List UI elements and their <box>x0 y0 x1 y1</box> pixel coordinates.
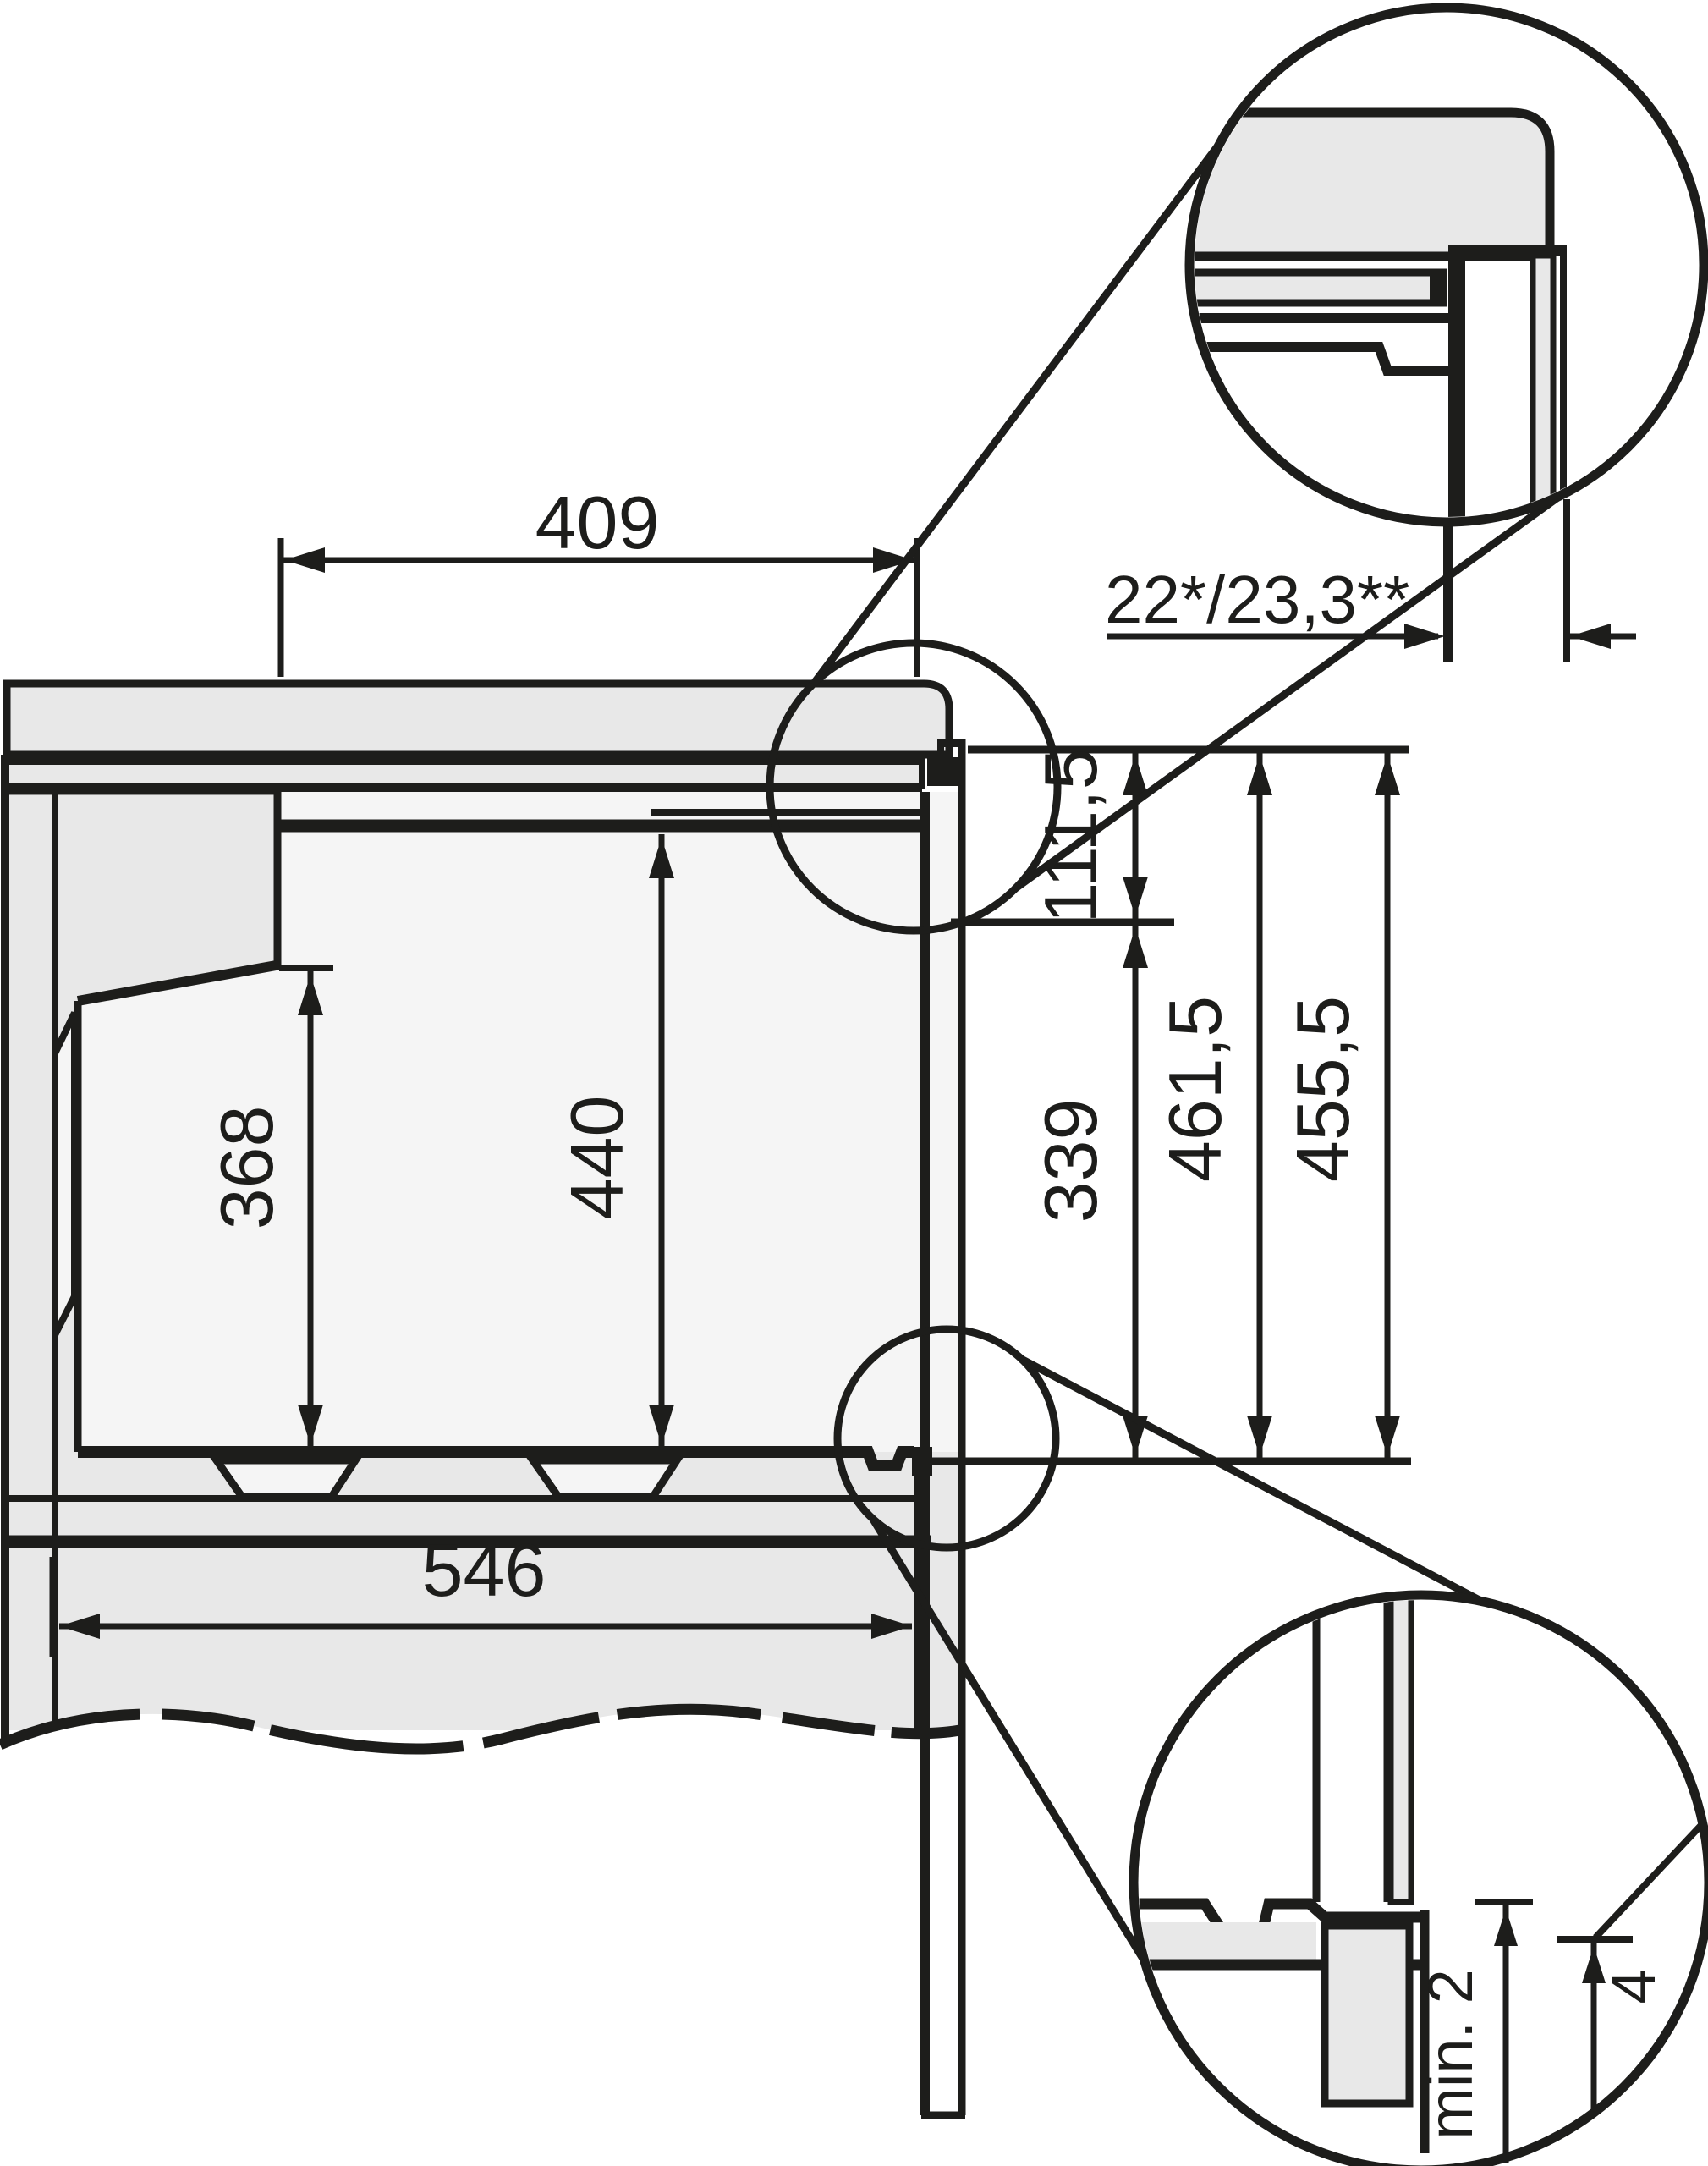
detail-top-door-glass <box>1533 256 1553 526</box>
label-339: 339 <box>1029 1099 1112 1223</box>
installation-diagram: 409 22*/23,3** 111,5 339 461,5 455,5 440… <box>0 0 1708 2166</box>
detail-top-panel-cap <box>1430 271 1445 305</box>
door-front-void <box>928 792 962 1452</box>
arrow-111-5-up <box>1123 755 1148 795</box>
label-111-5: 111,5 <box>1029 748 1112 923</box>
arrow-111-5-down <box>1123 877 1148 917</box>
label-368: 368 <box>205 1106 288 1230</box>
label-455-5: 455,5 <box>1281 996 1365 1182</box>
detail-bottom-shelf <box>1134 1922 1316 1960</box>
side-wall-slot <box>55 1013 74 1335</box>
arrow-461-5-up <box>1247 755 1272 795</box>
connector-top-a <box>1014 448 1626 889</box>
label-546: 546 <box>422 1528 546 1612</box>
detail-view-bottom: min. 2 4 <box>1134 1591 1708 2166</box>
detail-bottom-door-block <box>1325 1926 1409 2103</box>
arrow-overhang-right <box>1404 624 1445 649</box>
break-whiteout <box>0 1709 964 1861</box>
break-line-area <box>0 1709 964 1861</box>
detail-top-door-frame <box>1448 245 1465 525</box>
label-overhang: 22*/23,3** <box>1105 562 1409 637</box>
label-440: 440 <box>555 1096 639 1220</box>
label-461-5: 461,5 <box>1153 996 1237 1182</box>
top-panel <box>5 761 922 786</box>
detail-view-top <box>1142 8 1704 528</box>
arrow-455-5-up <box>1375 755 1400 795</box>
label-409: 409 <box>535 481 660 564</box>
label-min2: min. 2 <box>1415 1969 1486 2140</box>
detail-bottom-door-glass <box>1391 1591 1411 1902</box>
arrow-339-up <box>1123 927 1148 968</box>
arrow-461-5-down <box>1247 1416 1272 1456</box>
foot-vent-right <box>533 1460 677 1497</box>
arrow-409-left <box>284 547 325 573</box>
arrow-455-5-down <box>1375 1416 1400 1456</box>
label-4: 4 <box>1598 1969 1668 2004</box>
foot-vent-left <box>217 1460 355 1497</box>
technical-drawing-page: 409 22*/23,3** 111,5 339 461,5 455,5 440… <box>0 0 1708 2166</box>
